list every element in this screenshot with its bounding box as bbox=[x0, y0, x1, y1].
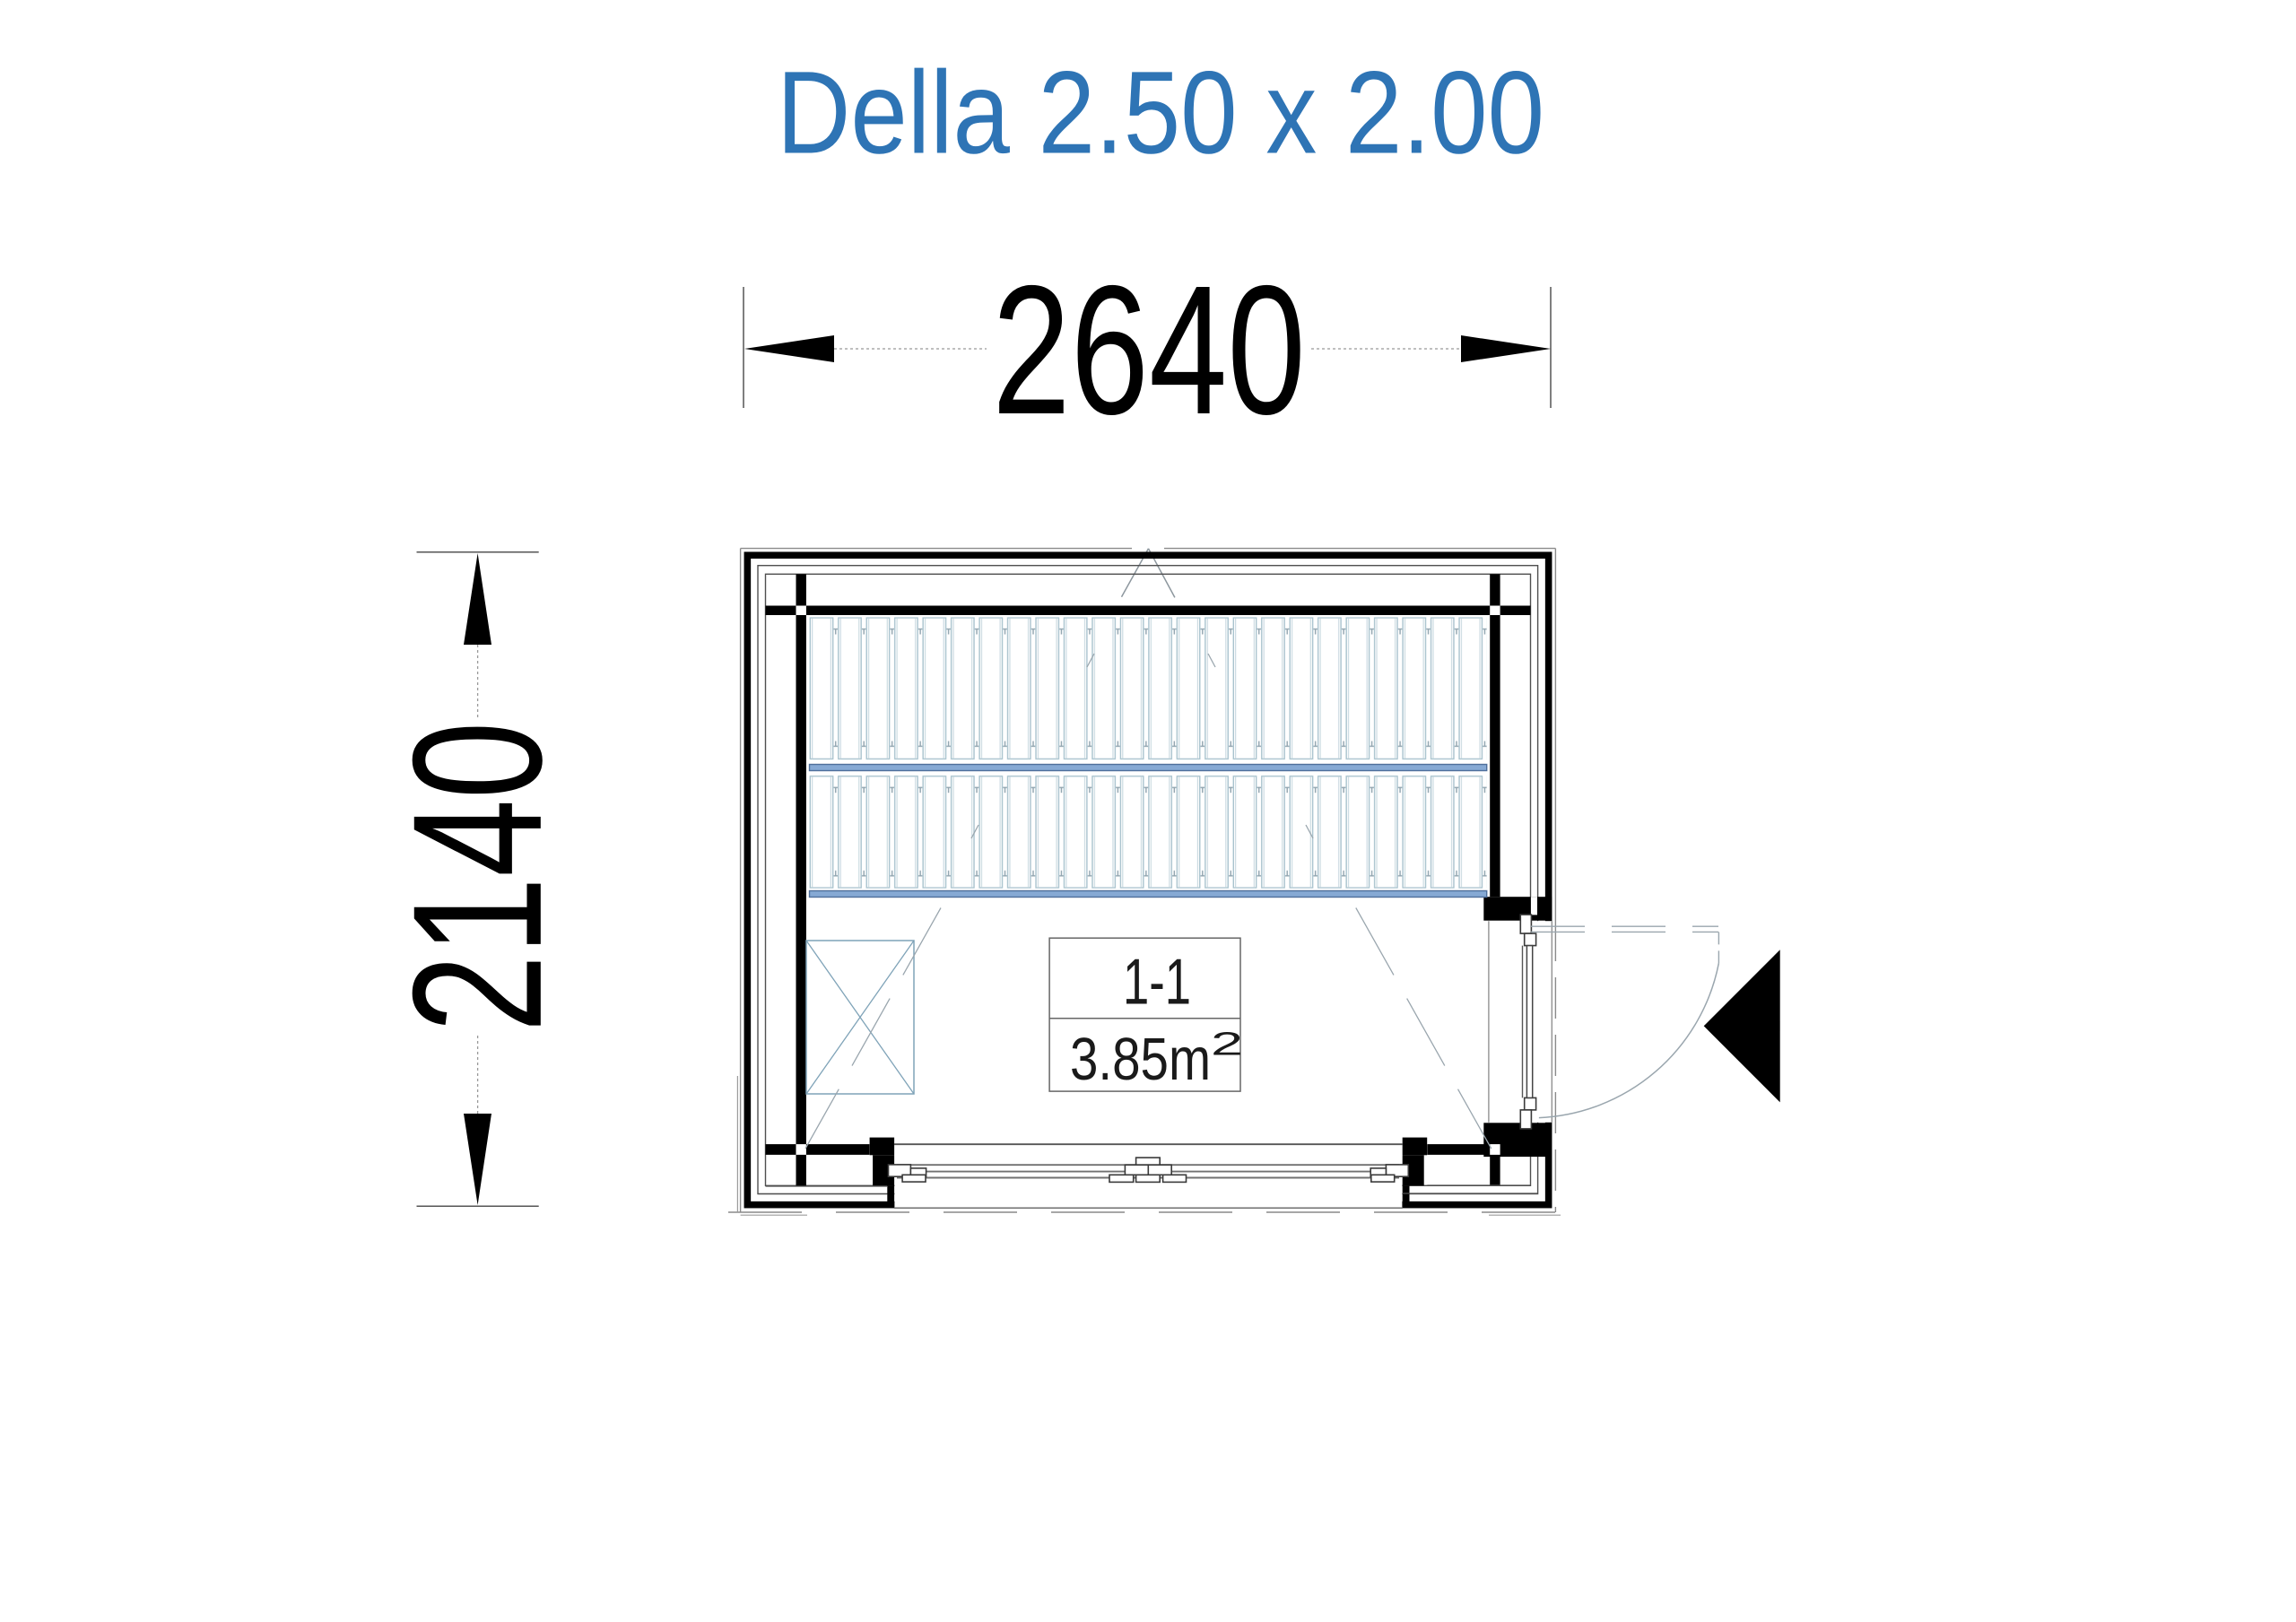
svg-text:2640: 2640 bbox=[992, 247, 1306, 453]
svg-text:2: 2 bbox=[1211, 1025, 1243, 1062]
svg-text:3.85m: 3.85m bbox=[1070, 1026, 1211, 1093]
svg-text:1-1: 1-1 bbox=[1123, 946, 1191, 1018]
svg-text:Della 2.50 x 2.00: Della 2.50 x 2.00 bbox=[777, 47, 1544, 178]
svg-text:2140: 2140 bbox=[375, 722, 580, 1033]
